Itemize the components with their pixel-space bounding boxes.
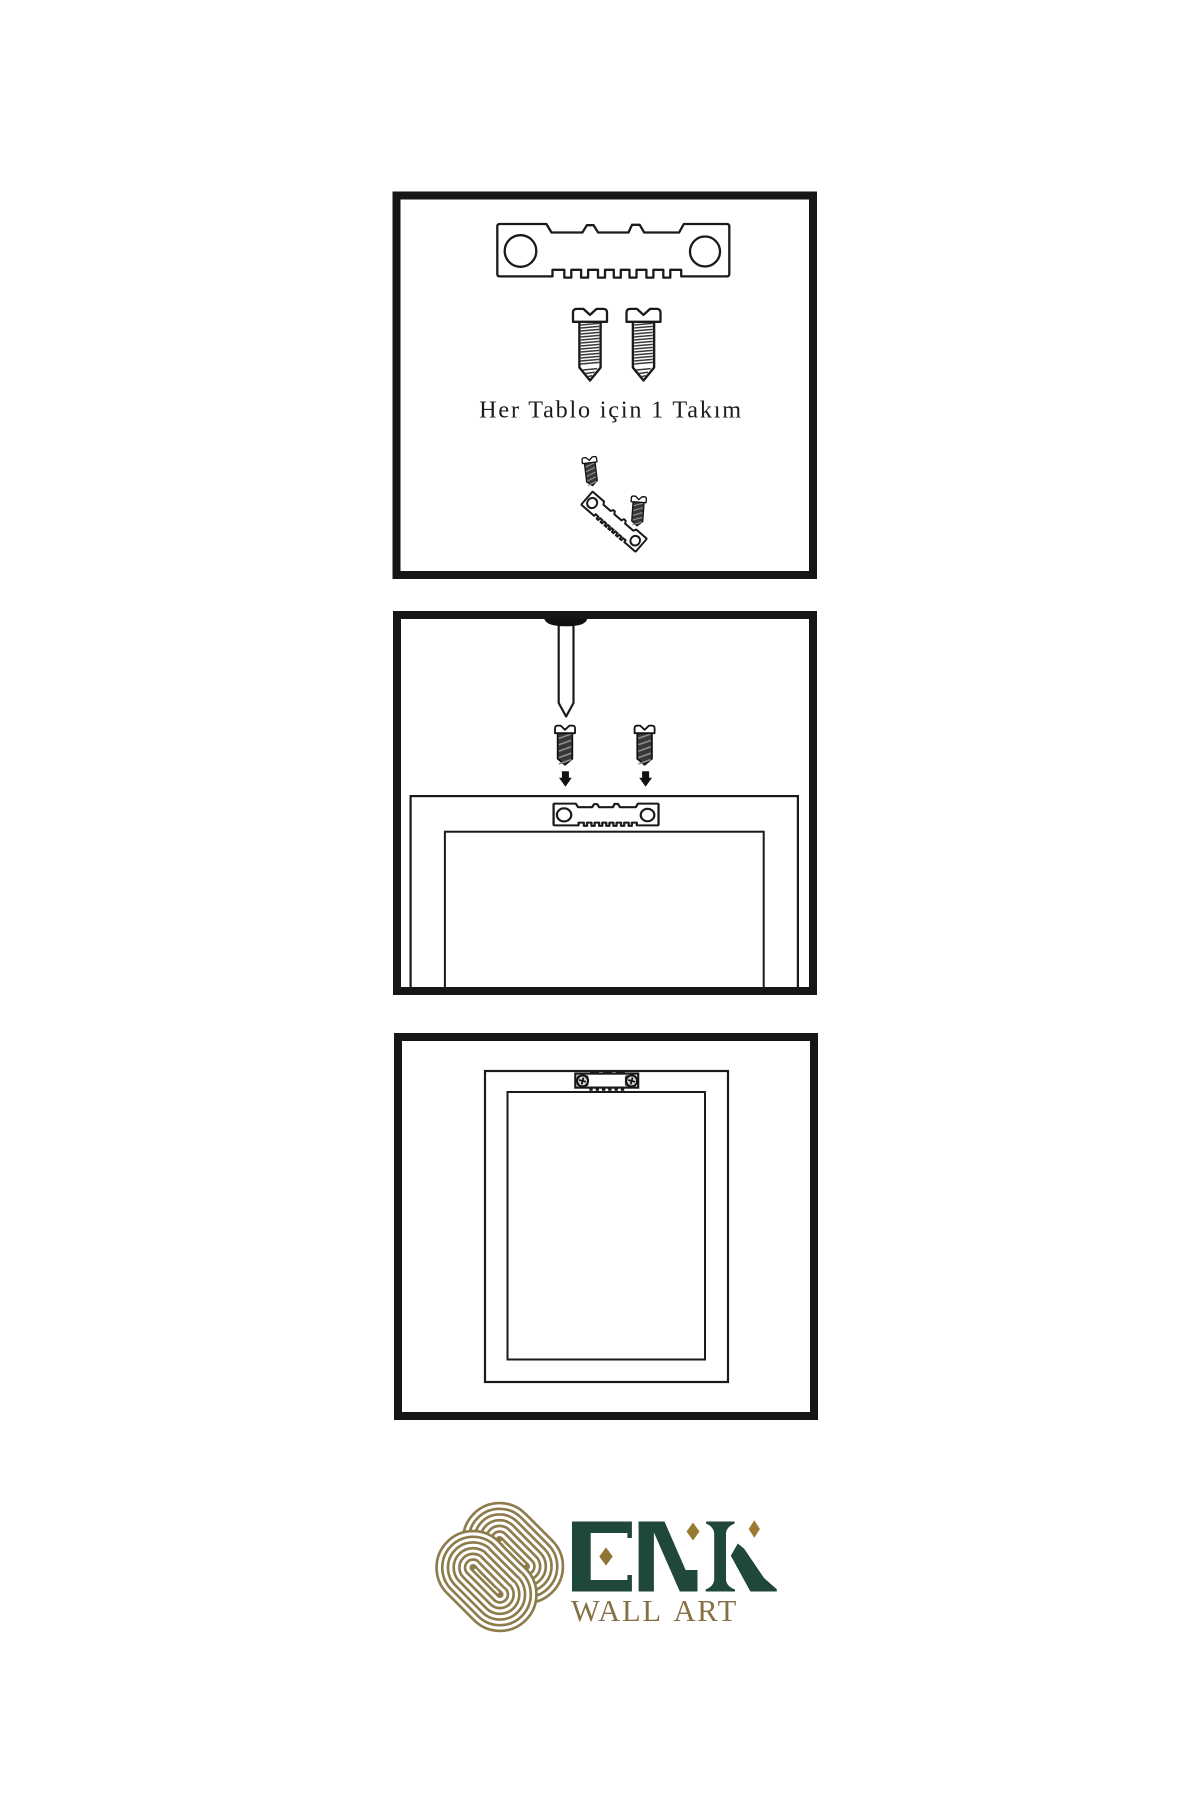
svg-text:WALL ART: WALL ART xyxy=(571,1594,738,1628)
svg-text:Her Tablo için 1 Takım: Her Tablo için 1 Takım xyxy=(479,397,743,424)
